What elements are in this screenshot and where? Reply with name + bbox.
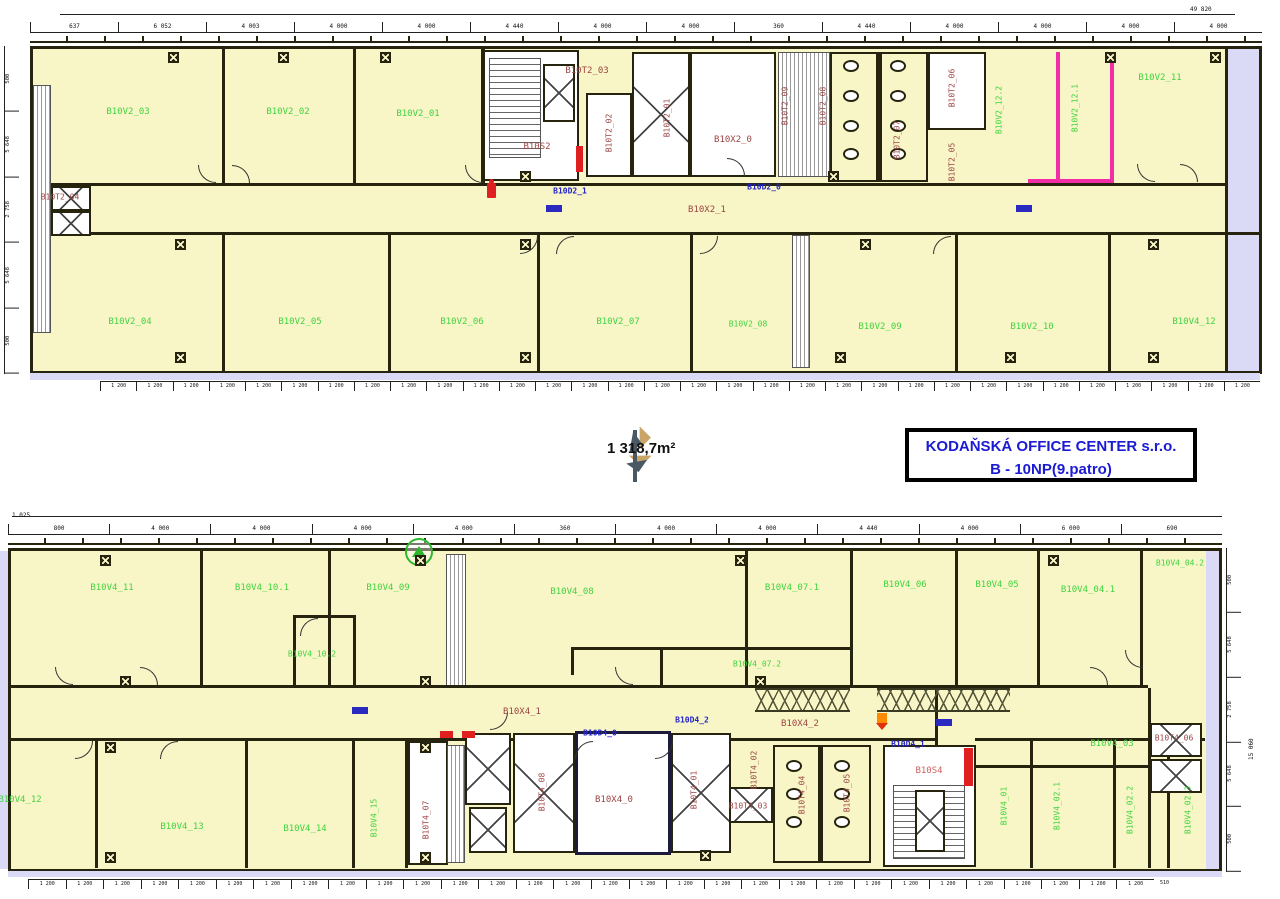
- toilet-icon: [843, 90, 859, 102]
- title-block: KODAŇSKÁ OFFICE CENTER s.r.o. B - 10NP(9…: [905, 428, 1197, 482]
- wall: [537, 235, 540, 371]
- room-label: B10T4_07: [422, 801, 431, 840]
- toilet-icon: [843, 120, 859, 132]
- room-label: B10V2_02: [266, 107, 309, 117]
- room-label: B10V2_05: [278, 317, 321, 327]
- room-label: B10V2_07: [596, 317, 639, 327]
- room-label: B10T2_01: [663, 99, 672, 138]
- room-label: B10V4_02.3: [1184, 786, 1193, 834]
- truss-bracing: [877, 688, 1010, 712]
- room-label: B10V2_12.2: [995, 86, 1004, 134]
- room-label: B10V4_06: [883, 580, 926, 590]
- stair-label: B10S4: [915, 766, 942, 776]
- elevator-shaft: [1150, 759, 1202, 793]
- corridor-label: B10X2_1: [688, 205, 726, 215]
- corridor-label: B10X4_1: [503, 707, 541, 717]
- room-label: B10V4_02.2: [1126, 786, 1135, 834]
- room-label: B10V4_08: [550, 587, 593, 597]
- wall: [200, 551, 203, 688]
- sensor-icon: [520, 239, 531, 250]
- wall: [1030, 741, 1033, 868]
- edge-strip: [30, 373, 1260, 380]
- door-label: B10D2_1: [553, 187, 587, 196]
- room-label: B10V2_01: [396, 109, 439, 119]
- room-label: B10V2_10: [1010, 322, 1053, 332]
- toilet-icon: [834, 816, 850, 828]
- wall: [660, 647, 850, 650]
- room-label: B10V4_04.1: [1061, 585, 1115, 595]
- room-label: B10V4_07.2: [733, 660, 781, 669]
- tick-line: [8, 538, 1222, 545]
- sensor-icon: [168, 52, 179, 63]
- wall: [222, 49, 225, 186]
- dimension-column-right: 5005 6482 7585 648500: [1226, 548, 1241, 872]
- room-label: B10T2_06: [948, 69, 957, 108]
- corridor-label: B10X4_2: [781, 719, 819, 729]
- sensor-icon: [828, 171, 839, 182]
- wall: [328, 551, 331, 688]
- wall: [660, 647, 663, 688]
- dimension-row: 8004 0004 0004 0004 0003604 0004 0004 44…: [8, 524, 1222, 535]
- room-label: B10T2_03: [565, 66, 608, 76]
- room-label: B10T2_08: [819, 87, 828, 126]
- toilet-icon: [786, 760, 802, 772]
- room-label: B10V4_01: [1000, 787, 1009, 826]
- sensor-icon: [380, 52, 391, 63]
- room-label: B10V2_03: [106, 107, 149, 117]
- door-label: B10D4_2: [675, 716, 709, 725]
- shaft-pier: [446, 554, 466, 686]
- room-label: B10T4_02: [750, 751, 759, 790]
- room-label: B10V2_12.1: [1071, 84, 1080, 132]
- sensor-icon: [420, 852, 431, 863]
- room-label: B10V4_10.1: [235, 583, 289, 593]
- room-label: B10T2_09: [781, 87, 790, 126]
- sensor-icon: [105, 852, 116, 863]
- fire-marker: [462, 731, 475, 738]
- dimension-total-right: 15 060: [1248, 640, 1255, 760]
- toilet-icon: [890, 60, 906, 72]
- room-label: B10S2: [523, 142, 550, 152]
- sensor-icon: [1048, 555, 1059, 566]
- room-label: B10V4_09: [366, 583, 409, 593]
- sensor-icon: [1210, 52, 1221, 63]
- valve-marker-icon: [877, 713, 887, 723]
- tick-line: [30, 36, 1262, 43]
- sensor-icon: [1148, 352, 1159, 363]
- wall: [33, 183, 1225, 186]
- door-mat-icon: [546, 205, 562, 212]
- wall: [955, 235, 958, 371]
- pink-wall: [1056, 52, 1060, 183]
- wall: [353, 615, 356, 688]
- room-label: B10T2_05: [948, 143, 957, 182]
- wall: [222, 235, 225, 371]
- wall: [876, 54, 882, 180]
- total-area-label: 1 318,7m²: [607, 440, 675, 457]
- wall: [818, 747, 823, 861]
- room-label: B10T4_04: [798, 776, 807, 815]
- door-label: B10D4_1: [891, 740, 925, 749]
- door-mat-icon: [936, 719, 952, 726]
- room-label: B10T2_07: [893, 121, 902, 160]
- title-company: KODAŇSKÁ OFFICE CENTER s.r.o.: [909, 435, 1193, 458]
- sensor-icon: [860, 239, 871, 250]
- room-label: B10V2_08: [729, 320, 768, 329]
- balcony-strip: [1228, 49, 1259, 371]
- room-label: B10V4_10.2: [288, 650, 336, 659]
- sensor-icon: [755, 676, 766, 687]
- sensor-icon: [1005, 352, 1016, 363]
- wall: [353, 49, 356, 186]
- room-label: B10V2_06: [440, 317, 483, 327]
- room-label: B10T4_05: [843, 774, 852, 813]
- sensor-icon: [175, 239, 186, 250]
- shaft-pier: [447, 745, 465, 863]
- room-label: B10V2_09: [858, 322, 901, 332]
- sensor-icon: [420, 676, 431, 687]
- elevator-shaft: [632, 52, 690, 177]
- floor-plan-canvas: 49 820 6376 0524 0034 0004 0004 4404 000…: [0, 0, 1280, 899]
- wall: [33, 232, 1259, 235]
- sensor-icon: [700, 850, 711, 861]
- room-label: B10V4_11: [90, 583, 133, 593]
- toilet-icon: [843, 148, 859, 160]
- service-room: [928, 52, 986, 130]
- sensor-icon: [415, 555, 426, 566]
- truss-bracing: [755, 688, 850, 712]
- room-label: B10T2_04: [41, 193, 80, 202]
- balcony-strip: [1206, 551, 1219, 869]
- sensor-icon: [105, 742, 116, 753]
- elevator-shaft: [469, 807, 507, 853]
- fire-hose-icon: [964, 748, 973, 786]
- wall: [850, 551, 853, 688]
- door-label: B10D2_0: [747, 183, 781, 192]
- room-label: B10V2_04: [108, 317, 151, 327]
- hydrant-icon: [487, 183, 496, 198]
- room-label: B10T2_02: [605, 114, 614, 153]
- dimension-line: [60, 14, 1235, 15]
- room-label: B10T4_03: [729, 802, 768, 811]
- edge-strip: [0, 551, 8, 869]
- wall: [1113, 741, 1116, 868]
- module-dimension-row: 1 2001 2001 2001 2001 2001 2001 2001 200…: [100, 381, 1260, 391]
- elevator-shaft: [51, 211, 91, 236]
- shaft-pier: [792, 235, 810, 368]
- sensor-icon: [420, 742, 431, 753]
- module-dimension-end: 510: [1160, 880, 1169, 886]
- sensor-icon: [735, 555, 746, 566]
- room-label: B10V4_12: [0, 795, 42, 805]
- dimension-total: 49 820: [1190, 6, 1212, 13]
- sensor-icon: [1105, 52, 1116, 63]
- room-label: B10V4_02.1: [1053, 782, 1062, 830]
- sensor-icon: [175, 352, 186, 363]
- module-dimension-row: 1 2001 2001 2001 2001 2001 2001 2001 200…: [28, 879, 1154, 889]
- sensor-icon: [520, 171, 531, 182]
- room-label: B10T4_06: [1155, 734, 1194, 743]
- sensor-icon: [278, 52, 289, 63]
- pink-wall: [1028, 179, 1114, 183]
- elevator-shaft: [671, 733, 731, 853]
- elevator-shaft: [915, 790, 945, 852]
- door-mat-icon: [352, 707, 368, 714]
- title-floor: B - 10NP(9.patro): [909, 458, 1193, 481]
- wall: [571, 647, 574, 675]
- fire-marker: [440, 731, 453, 738]
- room-label: B10V4_13: [160, 822, 203, 832]
- wall: [1225, 49, 1228, 371]
- wall: [690, 235, 693, 371]
- wall: [293, 615, 356, 618]
- wall: [571, 647, 661, 650]
- elevator-shaft: [465, 733, 511, 805]
- toilet-icon: [843, 60, 859, 72]
- room-label: B10V4_07.1: [765, 583, 819, 593]
- sensor-icon: [835, 352, 846, 363]
- lobby-label: B10X4_0: [595, 795, 633, 805]
- room-label: B10X2_0: [714, 135, 752, 145]
- room-label: B10V2_11: [1138, 73, 1181, 83]
- sensor-icon: [120, 676, 131, 687]
- dimension-column-left: 5005 6482 7585 648500: [4, 46, 19, 374]
- room-label: B10T4_08: [538, 773, 547, 812]
- edge-strip: [8, 871, 1222, 877]
- dimension-row: 6376 0524 0034 0004 0004 4404 0004 00036…: [30, 22, 1262, 33]
- pink-wall: [1110, 52, 1114, 183]
- door-mat-icon: [1016, 205, 1032, 212]
- room-label: B10V4_04.2: [1156, 559, 1204, 568]
- wall: [1037, 551, 1040, 688]
- room-label: B10T4_01: [690, 771, 699, 810]
- wall: [352, 741, 355, 868]
- wall: [95, 741, 98, 868]
- wall: [1108, 235, 1111, 371]
- room-label: B10V4_12: [1172, 317, 1215, 327]
- toilet-icon: [834, 760, 850, 772]
- wall: [245, 741, 248, 868]
- sensor-icon: [520, 352, 531, 363]
- room-label: B10V4_03: [1090, 739, 1133, 749]
- sensor-icon: [100, 555, 111, 566]
- wall: [955, 551, 958, 688]
- service-shaft: [33, 85, 51, 333]
- fire-hose-icon: [576, 146, 583, 172]
- room-label: B10V4_15: [370, 799, 379, 838]
- room-label: B10V4_14: [283, 824, 326, 834]
- toilet-icon: [786, 816, 802, 828]
- toilet-icon: [890, 90, 906, 102]
- sensor-icon: [1148, 239, 1159, 250]
- door-label: B10D4_0: [583, 729, 617, 738]
- wall: [388, 235, 391, 371]
- room-label: B10V4_05: [975, 580, 1018, 590]
- dimension-line: [12, 516, 1222, 517]
